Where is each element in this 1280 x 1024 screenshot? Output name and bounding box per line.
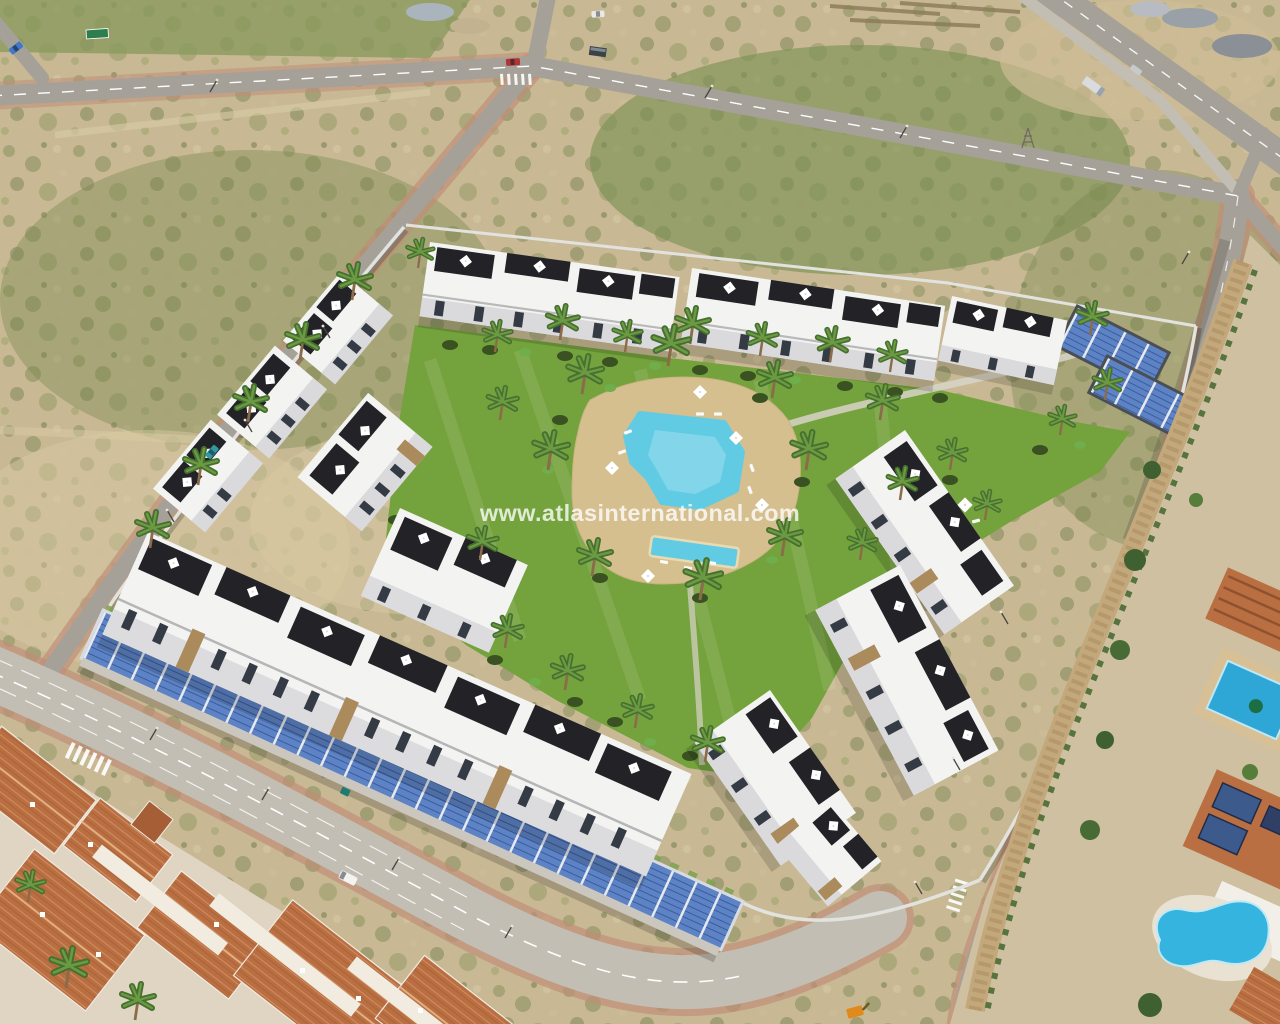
grass-strip-top-left (0, 0, 470, 58)
vehicle-car-red (506, 58, 520, 66)
aerial-photo (0, 0, 1280, 1024)
villa-pool-kidney (1157, 901, 1269, 966)
road-sign (86, 28, 109, 39)
vehicle-car-white (591, 10, 604, 17)
